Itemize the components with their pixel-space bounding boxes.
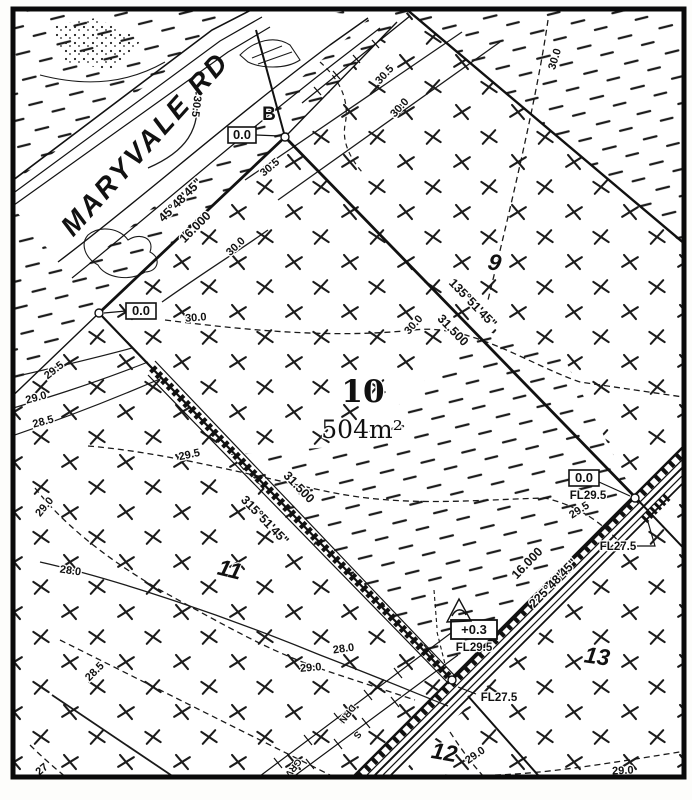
contour-label: 30.0 — [185, 311, 207, 324]
contour-label: 29.0 — [300, 661, 322, 675]
level-value-east: 0.0 — [575, 470, 593, 485]
survey-plan-page: MARYVALE RD B 0.0 0.0 0.0 +0.3 FL29.5 FL… — [0, 0, 692, 800]
fill-depth-value: +0.3 — [461, 622, 487, 637]
lot-number-12: 12 — [430, 737, 460, 767]
floor-level-south-upper: FL29.5 — [456, 642, 493, 654]
corner-peg-west — [95, 309, 103, 317]
corner-peg-b — [281, 133, 289, 141]
lot-number-13: 13 — [583, 641, 612, 670]
floor-level-south-lower: FL27.5 — [481, 692, 518, 704]
floor-level-east-lower: FL27.5 — [600, 541, 637, 553]
lot-area-label: 504m² — [321, 415, 402, 444]
level-value-west: 0.0 — [132, 303, 150, 318]
corner-peg-south — [448, 676, 456, 684]
survey-plan-map: MARYVALE RD B 0.0 0.0 0.0 +0.3 FL29.5 FL… — [0, 0, 692, 800]
survey-point-label: B — [262, 104, 276, 125]
corner-peg-east — [631, 494, 639, 502]
level-value-b: 0.0 — [233, 127, 251, 142]
floor-level-east-upper: FL29.5 — [570, 490, 607, 502]
lot-number-10: 10 — [341, 374, 384, 410]
